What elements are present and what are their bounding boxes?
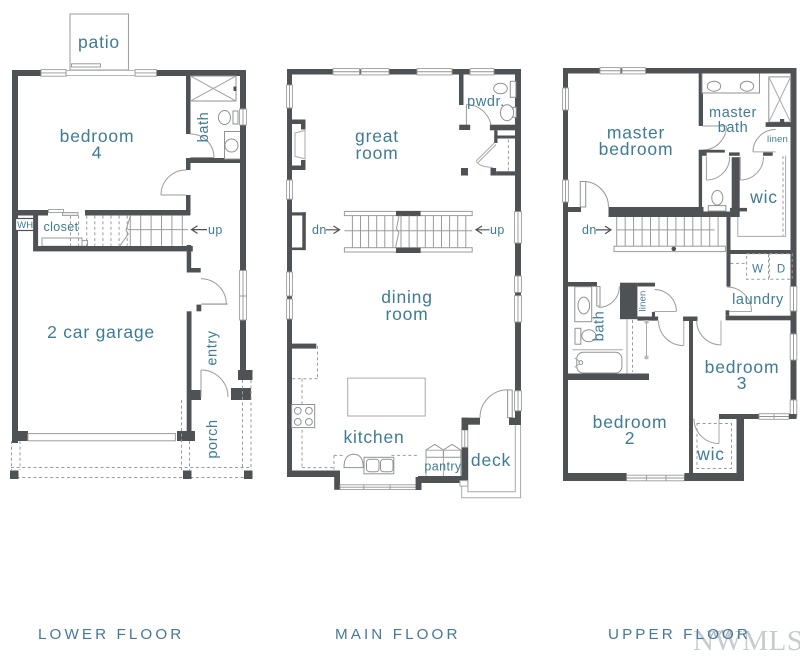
svg-text:wic: wic [696, 444, 725, 464]
svg-text:W: W [752, 264, 763, 276]
svg-text:room: room [385, 304, 428, 324]
svg-text:bath: bath [196, 112, 212, 143]
svg-text:linen: linen [638, 290, 649, 311]
svg-text:4: 4 [92, 143, 103, 163]
svg-text:2: 2 [625, 428, 636, 448]
svg-text:3: 3 [737, 373, 748, 393]
svg-text:bedroom: bedroom [599, 139, 674, 159]
svg-text:2 car garage: 2 car garage [47, 322, 155, 342]
svg-text:laundry: laundry [732, 292, 784, 308]
svg-text:WH: WH [17, 220, 33, 231]
svg-text:wic: wic [749, 187, 778, 207]
svg-text:linen: linen [767, 134, 788, 145]
svg-text:porch: porch [205, 419, 221, 458]
svg-text:MAIN FLOOR: MAIN FLOOR [335, 626, 461, 643]
svg-text:pantry: pantry [424, 460, 461, 474]
svg-text:kitchen: kitchen [343, 427, 404, 447]
svg-text:bath: bath [718, 120, 749, 136]
svg-text:master: master [709, 105, 757, 121]
svg-text:deck: deck [471, 450, 511, 470]
svg-text:LOWER FLOOR: LOWER FLOOR [38, 626, 184, 643]
svg-text:closet: closet [43, 220, 78, 234]
svg-text:entry: entry [205, 330, 221, 365]
svg-text:bath: bath [592, 311, 608, 342]
svg-text:D: D [777, 264, 785, 276]
svg-text:UPPER FLOOR: UPPER FLOOR [608, 626, 751, 643]
svg-text:room: room [355, 143, 398, 163]
svg-text:up: up [208, 223, 223, 237]
svg-text:patio: patio [78, 32, 120, 52]
svg-text:dn: dn [312, 223, 327, 237]
svg-text:up: up [490, 223, 505, 237]
svg-text:dn: dn [582, 223, 597, 237]
svg-text:pwdr.: pwdr. [467, 94, 505, 110]
